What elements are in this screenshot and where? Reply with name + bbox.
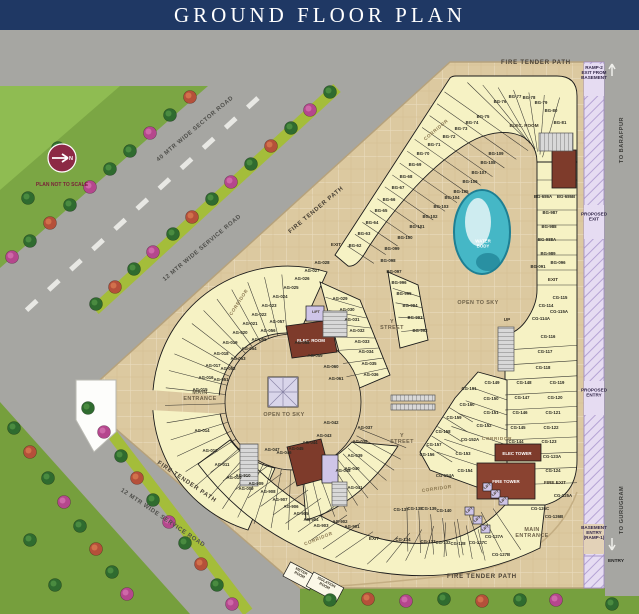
unit-label: AG-904 (303, 517, 319, 522)
unit-label: CG-120 (547, 395, 563, 400)
unit-label: CG-154 (457, 468, 473, 473)
unit-label: AG-060 (323, 364, 339, 369)
unit-label: BG-76 (494, 99, 507, 104)
water-body (454, 190, 510, 274)
unit-label: BG-69 (409, 162, 422, 167)
tree-icon (147, 246, 160, 259)
unit-label: BG-109 (488, 151, 504, 156)
unit-label: BG-989 (540, 251, 556, 256)
unit-label: AG-012 (202, 448, 218, 453)
tree-icon (90, 298, 103, 311)
unit-label: BG-72 (443, 134, 456, 139)
unit-label: CG-153 (455, 451, 471, 456)
unit-label: CG-145 (510, 425, 526, 430)
plan-label: WATERBODY (475, 239, 491, 249)
unit-label: CG-126B (545, 514, 563, 519)
unit-label: AG-020 (232, 330, 248, 335)
unit-label: BG-098 (380, 258, 396, 263)
proposed-exit-box (584, 205, 604, 239)
central-stair (323, 311, 347, 337)
unit-label: AG-026 (294, 276, 310, 281)
unit-label: AG-031 (344, 317, 360, 322)
tree-icon (184, 91, 197, 104)
tree-icon (167, 228, 180, 241)
tree-icon (22, 192, 35, 205)
unit-label: AG-905 (293, 511, 309, 516)
unit-label: BG-74 (466, 120, 479, 125)
unit-label: BG-70 (417, 151, 430, 156)
proposed-entry-box (584, 381, 604, 415)
unit-label: CG-114A (532, 316, 550, 321)
unit-label: AG-037 (357, 425, 373, 430)
unit-label: CG-160 (459, 402, 475, 407)
unit-label: AG-038 (352, 439, 368, 444)
unit-label: BG-105 (453, 189, 469, 194)
tree-icon (265, 140, 278, 153)
unit-label: CG-140 (436, 508, 452, 513)
unit-label: BG-102 (422, 214, 438, 219)
unit-label: AG-014 (194, 428, 210, 433)
tree-icon (24, 235, 37, 248)
compass-n: N (69, 156, 73, 162)
unit-label: CG-151 (483, 410, 499, 415)
unit-label: CG-147 (514, 395, 530, 400)
unit-label: AG-029 (332, 296, 348, 301)
unit-label: BG-62 (349, 243, 362, 248)
tree-icon (82, 402, 95, 415)
tree-icon (164, 109, 177, 122)
up-stair-east (498, 327, 514, 371)
unit-label: AG-043 (316, 433, 332, 438)
tree-icon (49, 579, 62, 592)
tree-icon (90, 543, 103, 556)
unit-label: AG-036 (363, 372, 379, 377)
tree-icon (400, 595, 413, 608)
unit-label: AG-021 (242, 321, 258, 326)
unit-label: BG-108 (480, 160, 496, 165)
unit-label: CG-127C (469, 540, 487, 545)
tree-icon (206, 193, 219, 206)
unit-label: BG-79 (535, 100, 548, 105)
unit-label: BG-987 (542, 210, 558, 215)
plan-label: FIRE TOWER (492, 479, 520, 484)
plan-label: FIRE EXIT (544, 480, 566, 485)
plan-label: EXIT (331, 242, 341, 247)
tree-icon (6, 251, 19, 264)
unit-label: AG-025 (283, 285, 299, 290)
unit-label: BG-66 (383, 197, 396, 202)
unit-label: CG-152 (476, 423, 492, 428)
unit-label: CG-114 (539, 303, 554, 308)
tree-icon (44, 217, 57, 230)
unit-label: CG-115 (553, 295, 568, 300)
plan-label: FIRE TENDER PATH (447, 574, 517, 580)
unit-label: BG-68 (400, 174, 413, 179)
tree-icon (226, 598, 239, 611)
unit-label: AG-023 (261, 303, 277, 308)
unit-label: BG-107 (471, 170, 487, 175)
unit-label: BG-100 (397, 235, 413, 240)
unit-label: AG-901 (344, 524, 360, 529)
tree-icon (211, 579, 224, 592)
plan-label: TO GURUGRAM (619, 486, 625, 534)
tree-icon (324, 594, 337, 607)
unit-label: AG-011 (215, 462, 230, 467)
unit-label: BG-71 (428, 142, 441, 147)
unit-label: BG-686A (534, 194, 552, 199)
unit-label: AG-018 (213, 351, 229, 356)
tree-icon (186, 211, 199, 224)
unit-label: CG-117 (538, 349, 553, 354)
unit-label: AG-909 (248, 481, 264, 486)
tree-icon (476, 595, 489, 608)
unit-label: AG-035 (361, 361, 377, 366)
unit-label: CG-125A (554, 493, 572, 498)
unit-label: AG-907 (272, 497, 288, 502)
unit-label: AG-032 (349, 328, 365, 333)
unit-label: AG-910 (235, 473, 251, 478)
unit-label: BG-106 (462, 179, 478, 184)
unit-label: BG-099 (384, 246, 400, 251)
unit-label: BG-097 (386, 269, 402, 274)
unit-label: BG-994 (402, 303, 418, 308)
unit-label: AG-044 (302, 440, 318, 445)
unit-label: AG-030 (339, 307, 355, 312)
unit-label: BG-80 (545, 108, 558, 113)
tree-icon (245, 158, 258, 171)
unit-label: CG-152A (461, 437, 479, 442)
tree-icon (128, 263, 141, 276)
unit-label: AG-027 (304, 268, 320, 273)
tree-icon (98, 426, 111, 439)
unit-label: CG-150 (483, 396, 499, 401)
tree-icon (606, 598, 619, 611)
unit-label: AG-047 (264, 447, 280, 452)
tree-icon (324, 86, 337, 99)
escalator (391, 404, 435, 410)
unit-label: AG-022 (251, 312, 267, 317)
plan-label: ELEC TOWER (502, 451, 532, 456)
unit-label: CG-161 (461, 386, 477, 391)
unit-label: AG-055 (251, 337, 267, 342)
unit-label: CG-156 (419, 452, 435, 457)
unit-label: AG-903 (313, 523, 329, 528)
tree-icon (144, 127, 157, 140)
unit-label: AG-053 (230, 356, 246, 361)
unit-label: CG-139 (421, 506, 437, 511)
unit-label: CG-119 (550, 380, 565, 385)
unit-label: AG-056 (260, 328, 276, 333)
unit-label: BG-096 (550, 260, 566, 265)
plan-label: OPEN TO SKY (457, 300, 498, 306)
unit-label: CG-154A (436, 473, 454, 478)
unit-label: BG-995 (396, 291, 412, 296)
unit-label: AG-048 (335, 468, 351, 473)
entry-ramp-stub (584, 556, 604, 588)
unit-label: AG-041 (347, 485, 363, 490)
unit-label: CG-122 (543, 425, 559, 430)
unit-label: BG-75 (477, 114, 490, 119)
tree-icon (8, 422, 21, 435)
tree-icon (225, 176, 238, 189)
tree-icon (115, 450, 128, 463)
unit-label: CG-116 (541, 334, 556, 339)
unit-label: AG-033 (354, 339, 370, 344)
tree-icon (362, 593, 375, 606)
unit-label: CG-144 (508, 439, 524, 444)
ground-floor-plan-page: FIRE TENDER PATHFIRE TENDER PATHFIRE TEN… (0, 0, 639, 614)
tree-icon (550, 594, 563, 607)
plan-label: OPEN TO SKY (263, 412, 304, 418)
tree-icon (121, 588, 134, 601)
unit-label: CG-121 (545, 410, 561, 415)
unit-label: BG-104 (444, 195, 460, 200)
tree-icon (104, 163, 117, 176)
southwest-stair (332, 482, 347, 506)
tree-icon (131, 472, 144, 485)
unit-label: BG-67 (392, 185, 405, 190)
unit-label: CG-148 (516, 380, 532, 385)
unit-label: AG-042 (323, 420, 339, 425)
unit-label: AG-058 (294, 340, 310, 345)
tree-icon (285, 122, 298, 135)
unit-label: CG-124 (545, 468, 561, 473)
unit-label: CG-123A (543, 454, 561, 459)
unit-label: BG-988A (538, 237, 556, 242)
unit-label: BG-81 (554, 120, 567, 125)
unit-label: CG-157 (426, 442, 442, 447)
unit-label: CG-128 (450, 541, 466, 546)
unit-label: BG-996 (391, 280, 407, 285)
plan-label: TO BARAFPUR (619, 117, 625, 163)
escalator (391, 395, 435, 401)
tree-icon (74, 520, 87, 533)
tree-icon (106, 566, 119, 579)
plan-label: ENTRY (608, 558, 625, 564)
unit-label: BG-988 (541, 224, 557, 229)
unit-label: BG-63 (358, 231, 371, 236)
unit-label: CG-132 (435, 540, 451, 545)
unit-label: AG-054 (241, 346, 257, 351)
unit-label: AG-052 (220, 366, 236, 371)
unit-label: BG-993 (407, 315, 423, 320)
unit-label: AG-017 (205, 363, 221, 368)
top-right-tower (552, 150, 576, 188)
unit-label: CG-158 (435, 429, 451, 434)
unit-label: BG-992 (412, 328, 428, 333)
unit-label: AG-016 (198, 375, 214, 380)
tree-icon (24, 446, 37, 459)
unit-label: CG-115A (550, 309, 568, 314)
tree-icon (42, 472, 55, 485)
unit-label: CG-149 (484, 380, 500, 385)
unit-label: AG-061 (328, 376, 344, 381)
tree-icon (109, 281, 122, 294)
unit-label: BG-103 (433, 204, 449, 209)
page-title: GROUND FLOOR PLAN (174, 3, 466, 27)
plan-label: LIFT (312, 310, 321, 314)
unit-label: AG-024 (272, 294, 288, 299)
unit-label: AG-015 (192, 387, 208, 392)
unit-label: BG-091 (530, 264, 546, 269)
tree-icon (195, 558, 208, 571)
plan-label: FIRE TENDER PATH (501, 60, 571, 66)
plan-label: UP (504, 317, 510, 322)
unit-label: CG-159 (446, 415, 462, 420)
unit-label: BG-686B (557, 194, 575, 199)
unit-label: BG-73 (455, 126, 468, 131)
unit-label: CG-127A (485, 534, 503, 539)
unit-label: AG-057 (269, 319, 285, 324)
unit-label: CG-118 (536, 365, 551, 370)
court-stair-south (240, 444, 258, 486)
unit-label: CG-126C (531, 506, 549, 511)
unit-label: BG-101 (409, 224, 425, 229)
unit-label: AG-019 (222, 340, 238, 345)
tree-icon (124, 145, 137, 158)
unit-label: CG-123 (541, 439, 557, 444)
top-right-stair (539, 133, 573, 151)
tree-icon (24, 534, 37, 547)
tree-icon (514, 594, 527, 607)
plan-label: EXIT (369, 536, 379, 541)
unit-label: CG-146 (512, 410, 528, 415)
unit-label: AG-908 (260, 489, 276, 494)
basement-ramp-strip (584, 62, 604, 560)
unit-label: AG-009 (238, 486, 254, 491)
unit-label: AG-059 (307, 353, 323, 358)
unit-label: AG-039 (347, 453, 363, 458)
plan-label: EXIT (548, 277, 558, 282)
tree-icon (58, 496, 71, 509)
tree-icon (438, 593, 451, 606)
unit-label: BG-77 (509, 94, 522, 99)
unit-label: BG-65 (375, 208, 388, 213)
unit-label: CG-134 (395, 537, 411, 542)
unit-label: AG-034 (358, 349, 374, 354)
unit-label: CG-127B (492, 552, 510, 557)
tree-icon (64, 199, 77, 212)
unit-label: AG-028 (314, 260, 330, 265)
unit-label: BG-64 (366, 220, 379, 225)
tree-icon (304, 104, 317, 117)
compass-caption: PLAN NOT TO SCALE (36, 182, 89, 188)
unit-label: AG-906 (283, 504, 299, 509)
unit-label: AG-051 (213, 377, 229, 382)
site-plan-canvas: FIRE TENDER PATHFIRE TENDER PATHFIRE TEN… (0, 0, 639, 614)
unit-label: CG-133 (420, 539, 436, 544)
plan-label: ELEC. ROOM (509, 123, 538, 128)
